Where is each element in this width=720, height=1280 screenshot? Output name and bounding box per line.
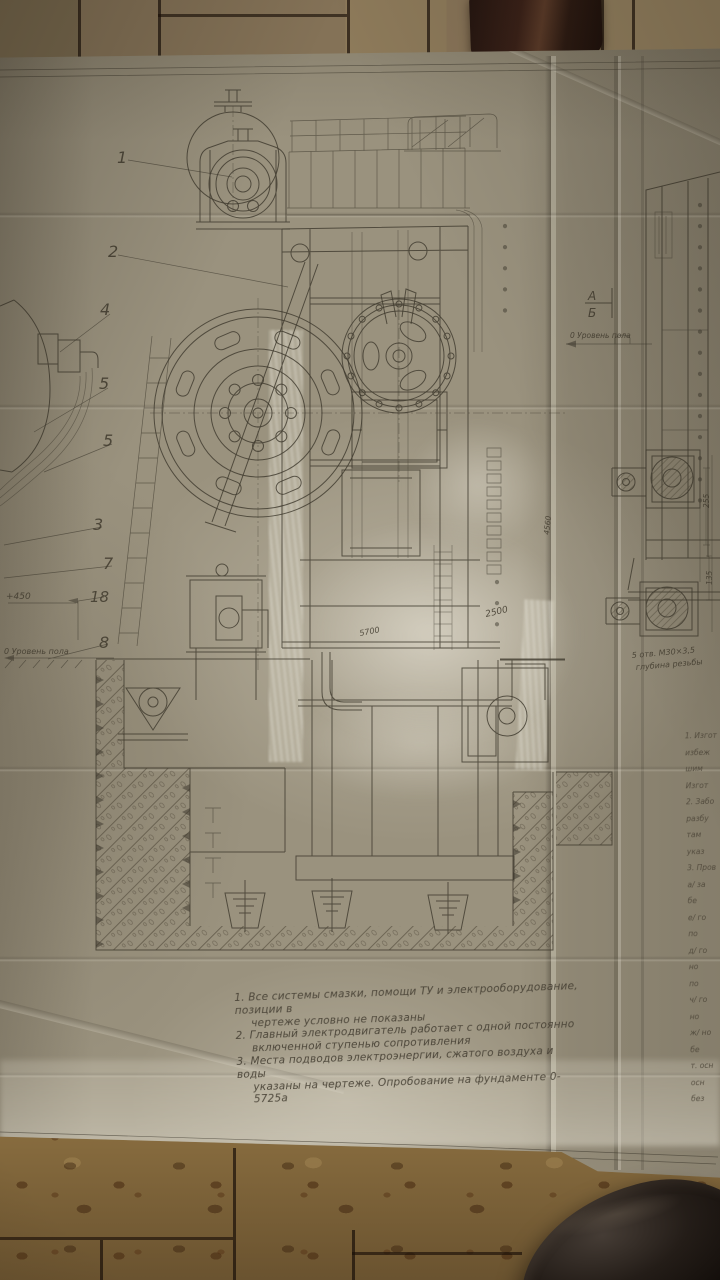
grout-line (632, 0, 635, 52)
foundation (5, 659, 612, 950)
lubrication-station (186, 564, 268, 700)
margin-notes-cut-off: 1. Изгот избеж шим Изгот 2. Забо разбу т… (685, 728, 720, 1108)
handwritten-notes: 1. Все системы смазки, помощи ТУ и элект… (234, 980, 582, 1107)
callout-7: 7 (103, 554, 114, 573)
pulley-head (196, 129, 290, 229)
section-letter-b: Б (588, 306, 596, 320)
margin-note-line: но (689, 959, 720, 976)
margin-note-line: ч/ го (689, 992, 720, 1009)
photo-of-blueprint: 1 2 4 5 5 3 7 18 8 +450 0 Уровень пола А… (0, 0, 720, 1280)
centerlines (150, 106, 566, 672)
margin-note-line: д/ го (688, 942, 720, 959)
margin-note-line: т. осн (690, 1058, 720, 1075)
dim-135: 135 (705, 570, 714, 585)
grout-line (352, 1252, 522, 1255)
margin-note-line: избеж (685, 744, 719, 761)
floor-level-label-left: 0 Уровень пола (4, 647, 69, 656)
margin-note-line: по (689, 975, 720, 992)
margin-note-line: шим (685, 761, 719, 778)
arrowhead (566, 341, 576, 348)
margin-note-line: 1. Изгот (685, 728, 719, 745)
callout-3: 3 (93, 515, 103, 534)
callout-4: 4 (100, 300, 110, 319)
elevation-label: +450 (6, 592, 31, 602)
grout-line (158, 14, 347, 17)
callout-18: 18 (90, 588, 109, 606)
margin-note-line: разбу (686, 810, 720, 827)
leader-lines (4, 160, 288, 659)
dim-255: 255 (702, 493, 711, 508)
blueprint-sheet: 1 2 4 5 5 3 7 18 8 +450 0 Уровень пола А… (0, 0, 720, 1280)
holes-note-line2: глубина резьбы (635, 657, 703, 672)
margin-note-line: там (686, 827, 720, 844)
margin-note-line: ж/ но (690, 1025, 720, 1042)
dim-2500: 2500 (484, 605, 509, 620)
floor-level-label-right: 0 Уровень пола (570, 331, 631, 340)
chain-links (487, 448, 501, 574)
frame-border-top (0, 61, 720, 77)
margin-note-line: без (691, 1091, 720, 1108)
anchor-pockets (225, 878, 468, 934)
margin-note-line: 2. Забо (686, 794, 720, 811)
service-platform (287, 114, 501, 215)
dim-4560: 4560 (542, 515, 553, 535)
clutch-bracket (352, 392, 447, 468)
callout-5b: 5 (103, 431, 113, 450)
grout-line (427, 0, 430, 56)
grout-line (352, 1230, 355, 1280)
grout-line (0, 1237, 233, 1240)
margin-note-line: указ (687, 843, 720, 860)
callout-2: 2 (108, 242, 118, 261)
ladder (118, 336, 171, 646)
section-letter-a: А (587, 289, 596, 303)
margin-note-line: осн (691, 1074, 720, 1091)
mounting-pads-detail (606, 450, 712, 636)
callout-8: 8 (99, 633, 109, 652)
callout-1: 1 (117, 148, 127, 167)
grout-line (158, 0, 161, 62)
margin-note-line: е/ го (688, 909, 720, 926)
grout-line (347, 0, 350, 58)
margin-note-line: а/ за (687, 876, 720, 893)
margin-note-line: 3. Пров (687, 860, 720, 877)
grout-line (100, 1240, 103, 1280)
grout-line (78, 0, 81, 60)
callout-5a: 5 (99, 374, 109, 393)
grout-line (233, 1148, 236, 1280)
dim-5700: 5700 (359, 625, 381, 638)
margin-note-line: бе (690, 1041, 720, 1058)
margin-note-line: бе (688, 893, 720, 910)
margin-note-line: но (690, 1008, 720, 1025)
margin-note-line: по (688, 926, 720, 943)
margin-note-line: Изгот (686, 777, 720, 794)
